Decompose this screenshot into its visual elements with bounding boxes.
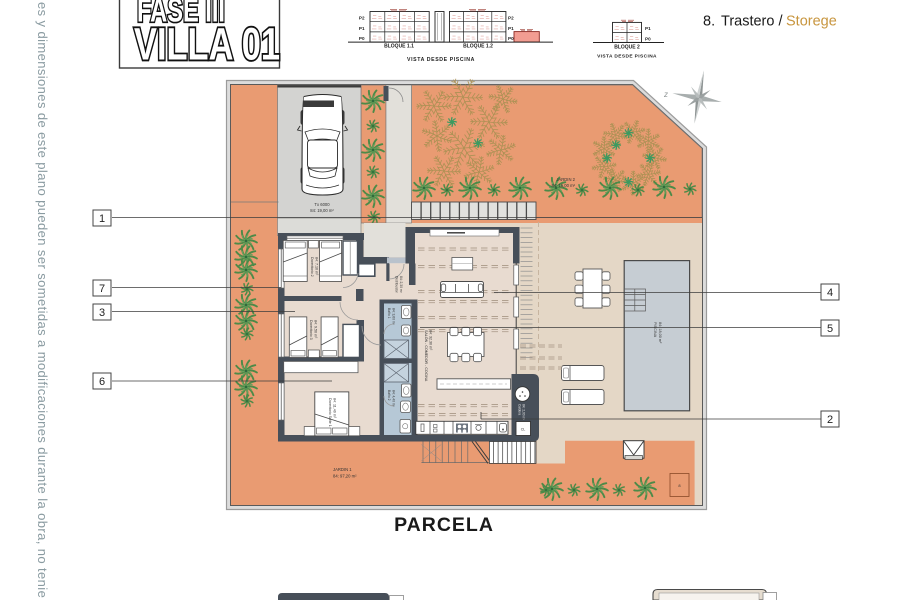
svg-text:VISTA DESDE PISCINA: VISTA DESDE PISCINA: [407, 57, 475, 63]
svg-text:PARCELA: PARCELA: [394, 514, 494, 536]
svg-text:BLOQUE 1.1: BLOQUE 1.1: [384, 44, 414, 50]
svg-text:P2: P2: [359, 16, 365, 21]
svg-text:84: 2,30 m²: 84: 2,30 m²: [399, 276, 403, 294]
svg-text:P0: P0: [645, 36, 651, 41]
svg-text:Caldera: Caldera: [518, 404, 522, 415]
svg-text:SALÓN - COMEDOR - COCINA: SALÓN - COMEDOR - COCINA: [424, 330, 429, 382]
svg-text:Dormitorio 3: Dormitorio 3: [309, 320, 313, 340]
svg-text:Storege: Storege: [786, 14, 837, 30]
svg-text:3: 3: [99, 307, 105, 319]
svg-text:P0: P0: [508, 36, 514, 41]
svg-text:P1: P1: [645, 26, 651, 31]
svg-text:84: 32,30 m²: 84: 32,30 m²: [429, 330, 433, 351]
svg-text:es y dimensiones de este plano: es y dimensiones de este plano pueden se…: [35, 2, 50, 598]
svg-text:JARDIN 2: JARDIN 2: [556, 177, 575, 182]
svg-text:4: 4: [827, 287, 833, 299]
svg-text:8.: 8.: [703, 14, 715, 30]
svg-text:2: 2: [827, 414, 833, 426]
svg-text:Distribuidor: Distribuidor: [395, 276, 399, 294]
svg-text:Baño 2: Baño 2: [387, 390, 391, 401]
svg-text:84: 19,00 m²: 84: 19,00 m²: [310, 208, 334, 213]
svg-text:Dormitorio 2: Dormitorio 2: [310, 257, 314, 277]
svg-text:84: 9,50 m²: 84: 9,50 m²: [314, 320, 318, 339]
svg-text:Tx 6000: Tx 6000: [314, 202, 330, 207]
svg-text:84: 4,40 m²: 84: 4,40 m²: [392, 390, 396, 408]
svg-text:84: 3,60 m²: 84: 3,60 m²: [392, 308, 396, 326]
svg-text:84: 18,00 m²: 84: 18,00 m²: [658, 322, 662, 344]
svg-text:84: 7,10 m²: 84: 7,10 m²: [315, 257, 319, 276]
svg-text:84: 97,20 m²: 84: 97,20 m²: [333, 474, 357, 479]
svg-text:PISCINA: PISCINA: [653, 322, 657, 338]
svg-text:P2: P2: [508, 16, 514, 21]
svg-text:z: z: [663, 90, 668, 99]
svg-text:CL: CL: [521, 428, 526, 432]
svg-text:84: 2,00 m²: 84: 2,00 m²: [522, 404, 526, 420]
svg-text:1: 1: [99, 213, 105, 225]
svg-text:5: 5: [827, 323, 833, 335]
svg-text:VISTA DESDE PISCINA: VISTA DESDE PISCINA: [597, 54, 657, 60]
svg-text:VILLA 01: VILLA 01: [134, 19, 280, 70]
svg-text:Trastero /: Trastero /: [721, 14, 783, 30]
svg-text:JARDIN 1: JARDIN 1: [333, 467, 352, 472]
svg-text:7: 7: [99, 283, 105, 295]
svg-text:84: 11,40 m²: 84: 11,40 m²: [333, 398, 337, 419]
svg-text:Dormitorio Suite 1: Dormitorio Suite 1: [328, 398, 332, 427]
svg-text:6: 6: [99, 376, 105, 388]
svg-text:P1: P1: [359, 26, 365, 31]
svg-text:BLOQUE 2: BLOQUE 2: [614, 45, 640, 51]
svg-text:P0: P0: [359, 36, 365, 41]
svg-text:BLOQUE 1.2: BLOQUE 1.2: [463, 44, 493, 50]
svg-text:P1: P1: [508, 26, 514, 31]
svg-text:Baño 1: Baño 1: [387, 308, 391, 319]
svg-text:84: 15,00 m²: 84: 15,00 m²: [551, 183, 575, 188]
